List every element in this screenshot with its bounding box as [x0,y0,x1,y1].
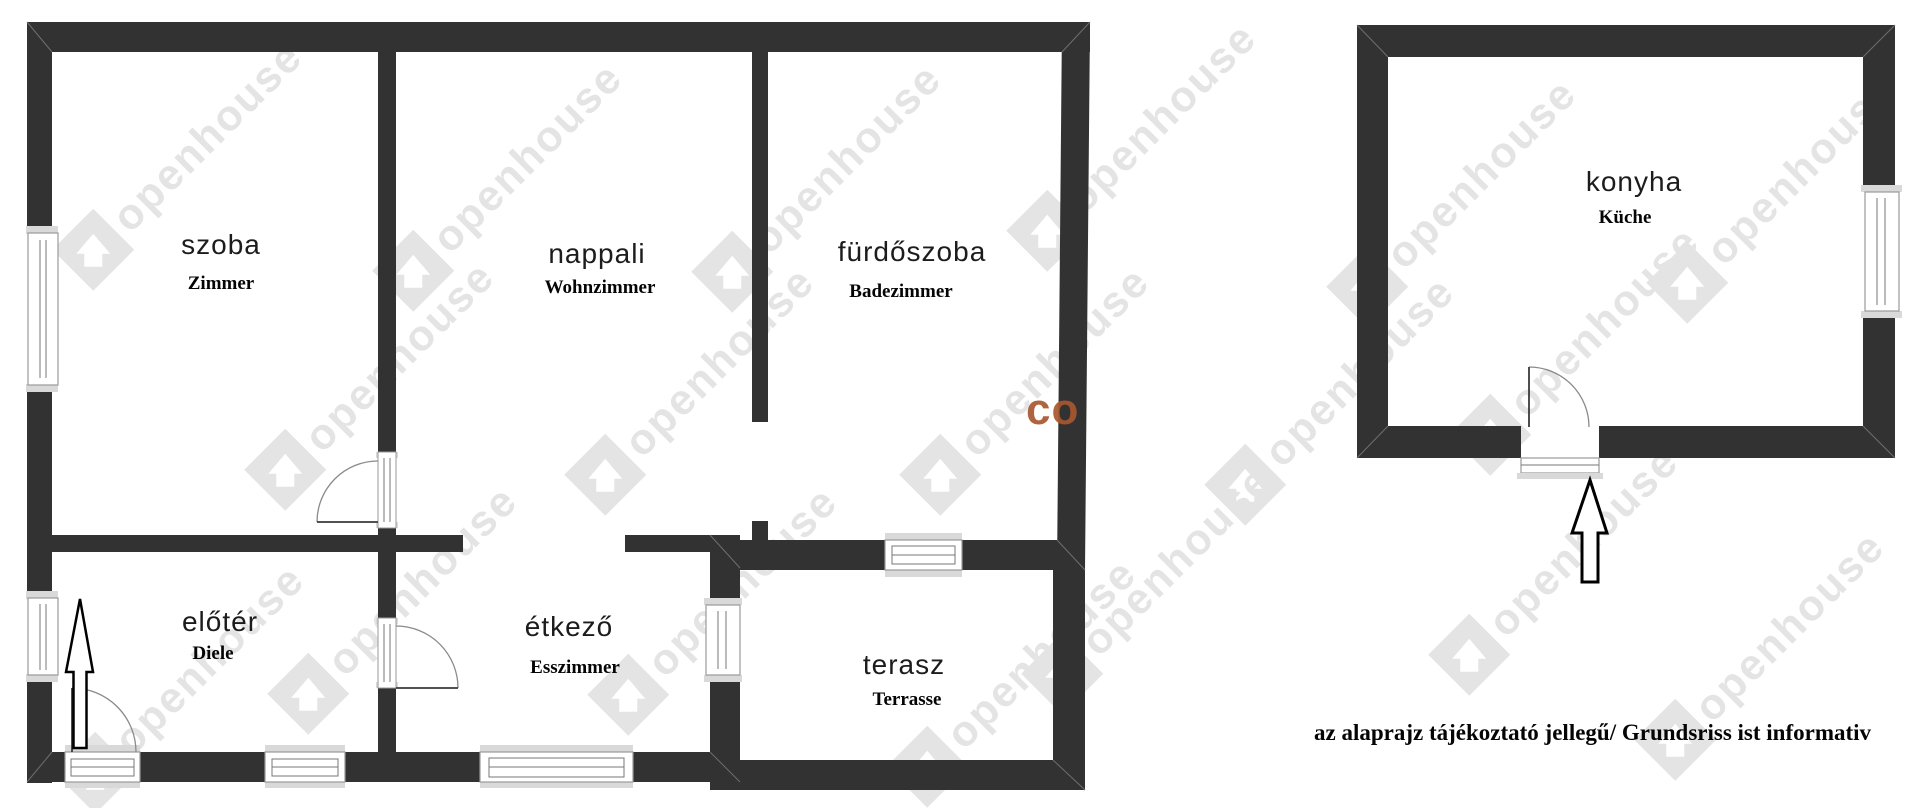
openhouse-watermark: openhouse [244,248,507,511]
openhouse-watermark: openhouse [372,49,635,312]
watermark-text: openhouse [638,477,847,686]
wall-eloter-etkezo [378,552,396,618]
window-szoba-icon [26,226,58,392]
watermark-text: openhouse [742,54,951,263]
wall-kitchen-bottom [1599,426,1895,458]
openhouse-watermark: openhouse [691,50,954,313]
wall-terasz-north [740,540,885,570]
door-szoba-frame-icon [376,452,398,528]
door-etkezo-icon [396,626,458,688]
wall-main-bottom [140,752,265,782]
door-etkezo-frame-icon [376,618,398,688]
watermark-text: openhouse [1377,69,1586,278]
wall-main-left [27,22,52,233]
wall-kitchen-bottom [1357,426,1521,458]
main-entrance-arrow-icon [66,599,93,748]
watermark-text: openhouse [423,53,632,262]
window-terasz-icon [885,533,962,577]
wall-main-left [27,385,52,598]
watermark-text: openhouse [1685,522,1894,731]
wall-kitchen-left [1357,25,1388,458]
door-szoba-icon [317,461,378,522]
wall-kitchen-right [1863,25,1895,192]
wall-main-bottom [343,752,480,782]
watermark-text: openhouse [105,555,314,764]
window-etkezo-east-icon [704,598,742,682]
window-konyha-icon [1861,185,1902,318]
wall-nappali-furdoszoba [752,52,768,422]
wall-kitchen-top [1357,25,1895,57]
window-eloter-icon [26,591,58,682]
wall-main-top [27,22,1090,52]
watermark-text: openhouse [950,257,1159,466]
wall-kitchen-right [1863,311,1895,458]
wall-horizontal [625,535,710,552]
openhouse-watermark: openhouse [267,472,530,735]
wall-horizontal [52,535,463,552]
watermark-accent: co [1026,385,1079,434]
openhouse-watermark: openhouse [564,253,827,516]
window-etkezo-south-icon [480,745,633,788]
window-eloter-south-icon [265,745,345,788]
disclaimer-text: az alaprajz tájékoztató jellegű/ Grundsr… [1314,720,1871,746]
watermark-text: openhouse [318,476,527,685]
wall-szoba-nappali [378,52,396,452]
openhouse-watermark: openhouse [52,28,315,291]
wall-eloter-etkezo [378,688,396,752]
watermark-text: openhouse [1500,217,1709,426]
wall-terasz-east [1053,540,1085,790]
watermark-text: openhouse [103,32,312,241]
wall-main-bottom [27,752,65,782]
wall-stub [752,521,768,540]
watermark-layer: openhouseopenhouseopenhouseopenhouseopen… [52,9,1909,808]
wall-main-right [1057,22,1090,570]
entrance-door-opening-icon [65,745,140,788]
wall-etkezo-terasz [710,675,740,752]
floorplan-svg: openhouseopenhouseopenhouseopenhouseopen… [0,0,1920,808]
wall-terasz-south [710,760,1085,790]
floorplan-canvas: openhouseopenhouseopenhouseopenhouseopen… [0,0,1920,808]
wall-etkezo-terasz [710,535,740,605]
